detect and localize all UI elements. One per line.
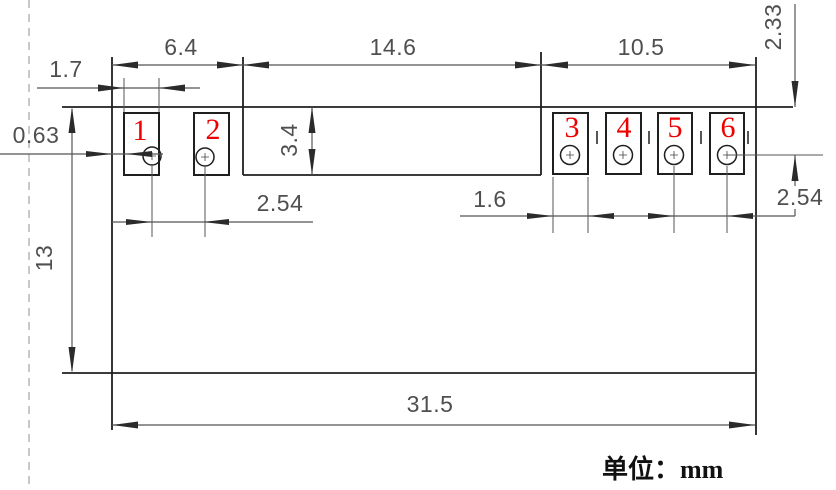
dim-middle-section-width: 14.6 <box>370 34 417 60</box>
module-outline <box>62 52 793 435</box>
dim-left-pad-width: 1.7 <box>49 56 82 82</box>
unit-note: 单位：mm <box>602 454 724 484</box>
pad-4-number: 4 <box>617 111 632 144</box>
dim-left-pads-pitch: 2.54 <box>257 190 304 216</box>
dim-left-section-width: 6.4 <box>164 34 197 60</box>
dim-board-width: 31.5 <box>407 391 454 417</box>
pad-1-number: 1 <box>133 114 148 147</box>
pad-6-number: 6 <box>721 111 736 144</box>
pads: 1 2 3 4 5 6 <box>124 111 748 175</box>
dim-right-section-width: 10.5 <box>618 34 665 60</box>
pad-2-number: 2 <box>206 113 221 146</box>
hole-center-marks <box>148 151 731 161</box>
dim-board-height: 13 <box>31 245 57 272</box>
dim-left-pitch: 2.54 <box>112 166 313 237</box>
dim-top-to-hole-row: 2.33 <box>760 4 786 51</box>
pad-3-number: 3 <box>565 111 580 144</box>
dim-top-row: 6.4 14.6 10.5 <box>112 34 755 69</box>
dim-board-width: 31.5 <box>112 391 755 429</box>
engineering-drawing: 1 2 3 4 5 6 6.4 14.6 10.5 1.7 0.63 <box>0 0 836 490</box>
dim-right-pads-pitch: 2.54 <box>777 184 824 210</box>
drawing-svg: 1 2 3 4 5 6 6.4 14.6 10.5 1.7 0.63 <box>0 0 836 490</box>
dim-middle-height: 3.4 <box>276 107 316 175</box>
dim-right-pad-width: 1.6 <box>473 186 506 212</box>
dim-middle-section-height: 3.4 <box>276 123 302 156</box>
dim-edge-to-pad-gap: 0.63 <box>13 122 60 148</box>
pad-5-number: 5 <box>668 111 683 144</box>
